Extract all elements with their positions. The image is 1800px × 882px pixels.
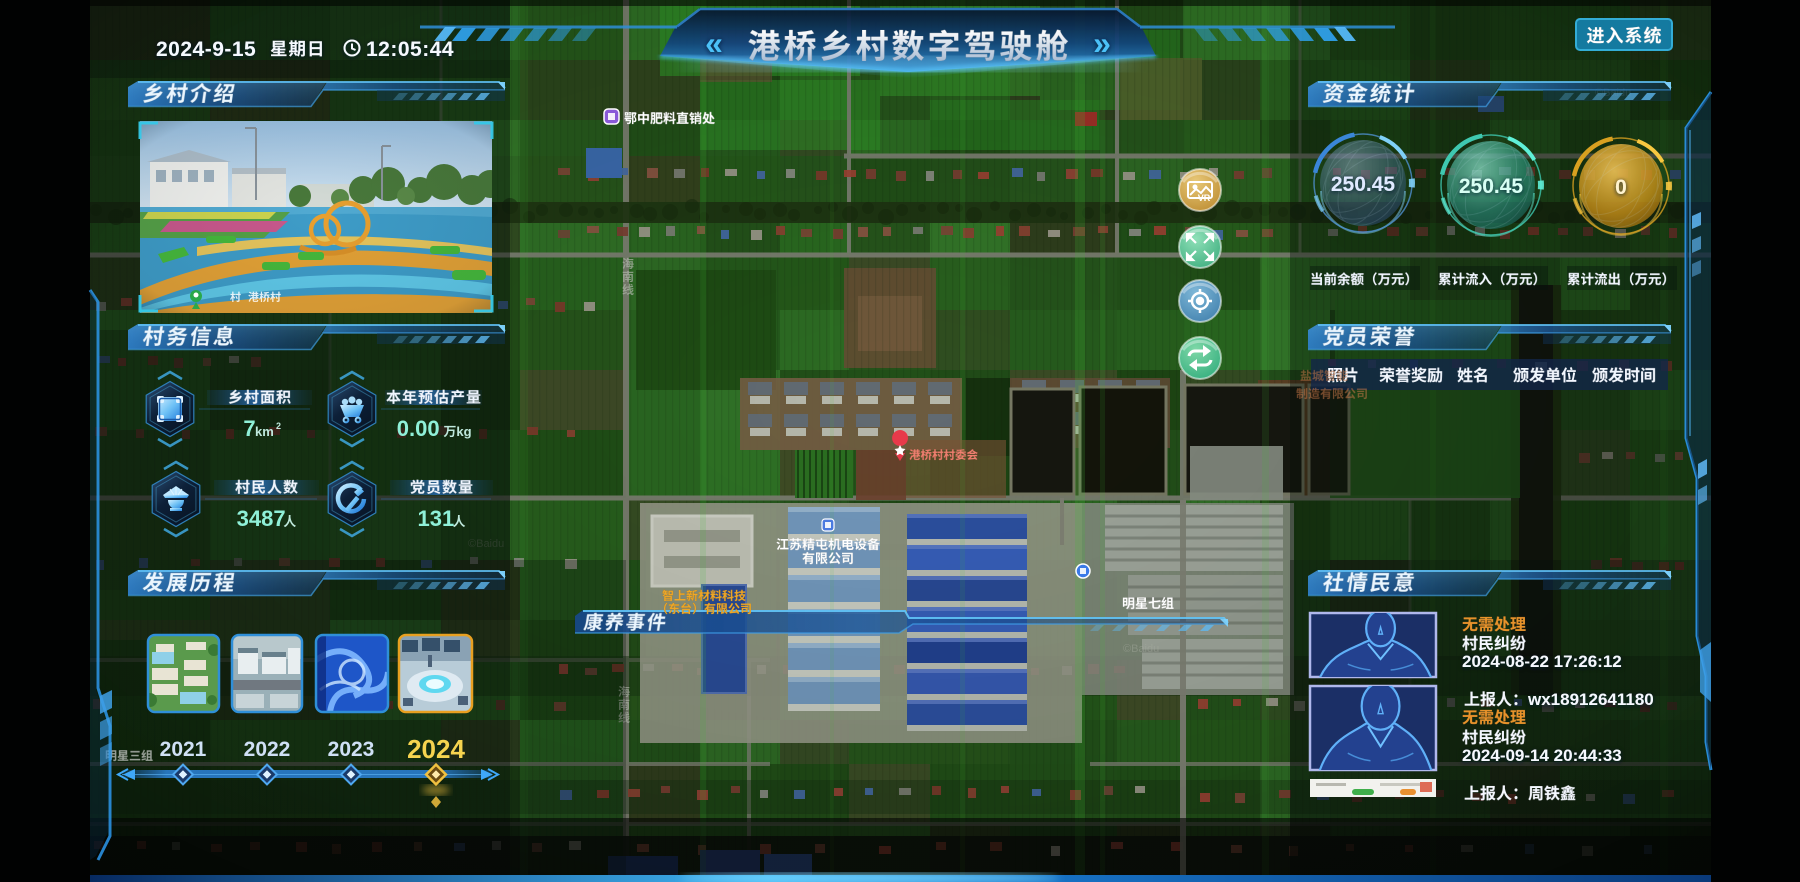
svg-text:250.45: 250.45 [1459,175,1524,198]
svg-text:2022: 2022 [244,738,291,761]
svg-text:7: 7 [243,416,255,441]
svg-text:2023: 2023 [328,738,375,761]
svg-text:kg: kg [456,424,471,439]
svg-text:2024-08-22 17:26:12: 2024-08-22 17:26:12 [1462,652,1622,671]
svg-text:2024: 2024 [407,734,465,764]
svg-text:km: km [255,424,274,439]
svg-text:131: 131 [418,506,455,531]
svg-text:»: » [1093,25,1111,61]
svg-text:250.45: 250.45 [1331,173,1396,196]
svg-text:2024-9-15: 2024-9-15 [156,38,256,61]
svg-text:12:05:44: 12:05:44 [366,38,454,61]
svg-text:0.00: 0.00 [397,416,440,441]
svg-text:2021: 2021 [160,738,207,761]
svg-text:3487: 3487 [237,506,286,531]
svg-text:2: 2 [276,421,281,431]
svg-text:«: « [705,25,723,61]
svg-text:2024-09-14 20:44:33: 2024-09-14 20:44:33 [1462,746,1622,765]
svg-text:VR: VR [1198,193,1211,203]
svg-text:wx18912641180: wx18912641180 [1527,690,1654,709]
svg-text:0: 0 [1615,176,1627,199]
